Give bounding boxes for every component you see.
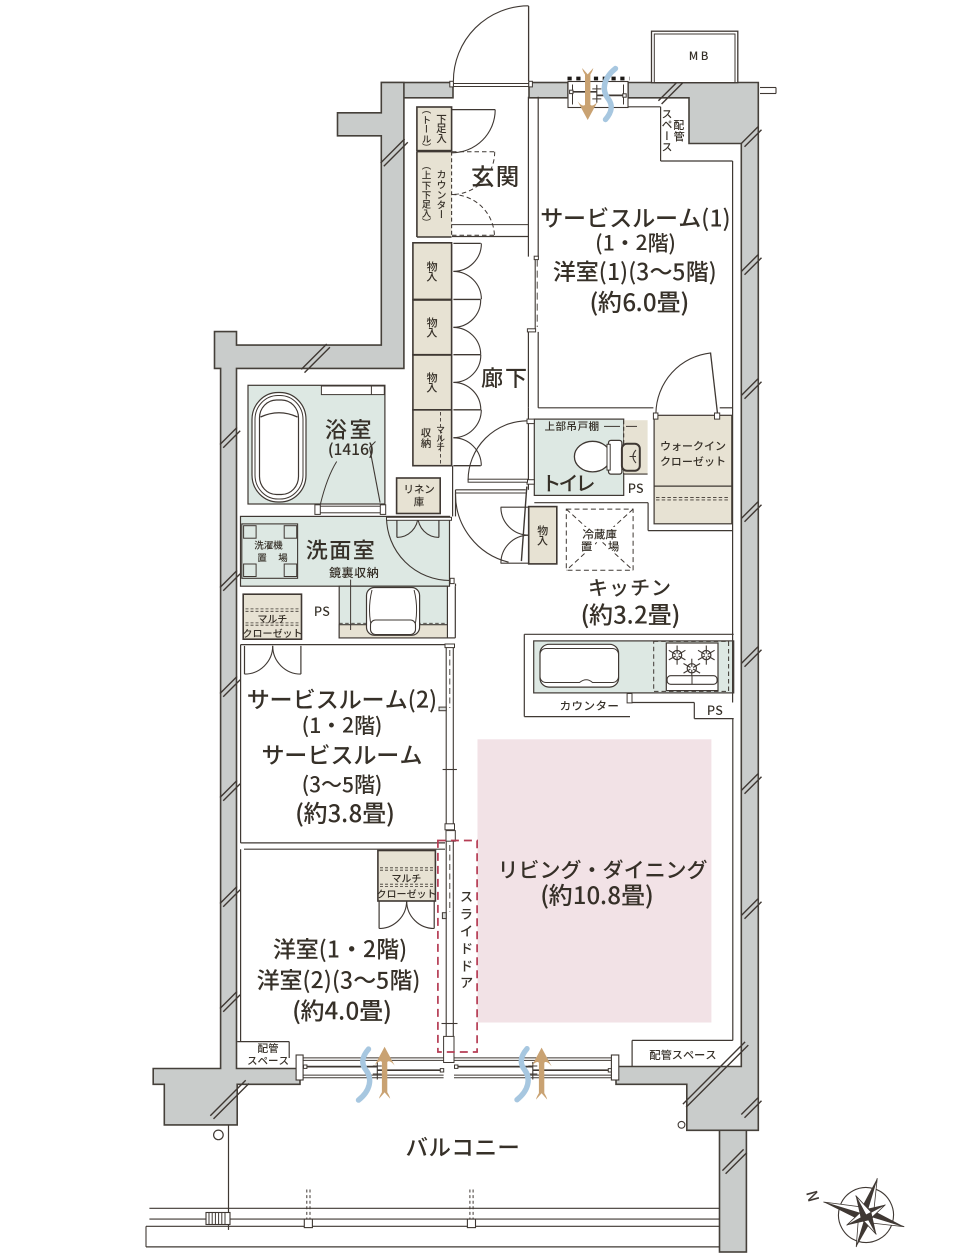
svg-text:洋室(1)(3〜5階): 洋室(1)(3〜5階)	[553, 253, 717, 287]
svg-text:マルチ: マルチ	[392, 870, 422, 885]
svg-text:廊下: 廊下	[481, 361, 529, 393]
svg-text:（トール）: （トール）	[420, 105, 434, 153]
svg-text:(約3.2畳): (約3.2畳)	[581, 596, 681, 631]
svg-text:スペース: スペース	[247, 1054, 289, 1069]
svg-text:(1・2階): (1・2階)	[302, 710, 383, 740]
svg-text:場: 場	[277, 550, 288, 564]
svg-text:物入: 物入	[424, 316, 440, 338]
svg-text:洋室(1・2階): 洋室(1・2階)	[273, 931, 408, 965]
svg-text:N: N	[801, 1188, 824, 1204]
svg-text:PS: PS	[707, 700, 723, 719]
svg-text:洋室(2)(3〜5階): 洋室(2)(3〜5階)	[256, 962, 420, 996]
svg-text:バルコニー: バルコニー	[405, 1131, 520, 1163]
svg-text:クローゼット: クローゼット	[243, 625, 303, 640]
svg-text:クローゼット: クローゼット	[377, 885, 437, 900]
svg-text:ウォークイン: ウォークイン	[660, 438, 726, 454]
svg-text:スライドドア: スライドドア	[457, 889, 477, 993]
svg-text:洗面室: 洗面室	[306, 533, 377, 565]
svg-text:PS: PS	[314, 601, 330, 620]
svg-text:庫: 庫	[413, 495, 425, 510]
svg-text:トイレ: トイレ	[542, 468, 594, 497]
svg-text:物入: 物入	[535, 524, 551, 546]
svg-text:(約4.0畳): (約4.0畳)	[292, 992, 392, 1027]
svg-text:物入: 物入	[424, 260, 440, 282]
svg-text:PS: PS	[628, 478, 644, 497]
svg-text:玄関: 玄関	[471, 158, 521, 192]
svg-text:下足入: 下足入	[434, 113, 449, 145]
svg-text:スペース: スペース	[659, 108, 675, 152]
svg-text:収納: 収納	[419, 427, 434, 449]
svg-text:(約10.8畳): (約10.8畳)	[540, 876, 653, 911]
svg-text:置: 置	[257, 550, 267, 564]
svg-text:(約6.0畳): (約6.0畳)	[590, 283, 690, 318]
svg-text:(1416): (1416)	[328, 438, 374, 460]
svg-text:置: 置	[581, 539, 593, 555]
svg-text:マルチ: マルチ	[258, 611, 288, 626]
svg-text:場: 場	[608, 539, 620, 555]
svg-text:物入: 物入	[424, 371, 440, 393]
svg-text:上部吊戸棚: 上部吊戸棚	[545, 419, 600, 434]
svg-text:（上下下足入）: （上下下足入）	[420, 161, 434, 228]
svg-text:クローゼット: クローゼット	[660, 454, 726, 470]
svg-text:カウンター: カウンター	[434, 169, 449, 219]
svg-text:(約3.8畳): (約3.8畳)	[295, 794, 395, 829]
svg-text:サービスルーム: サービスルーム	[262, 737, 423, 771]
svg-text:カウンター: カウンター	[560, 698, 620, 714]
svg-text:MB: MB	[689, 48, 711, 64]
svg-text:配管スペース: 配管スペース	[649, 1047, 716, 1063]
svg-text:鏡裏収納: 鏡裏収納	[328, 564, 379, 581]
